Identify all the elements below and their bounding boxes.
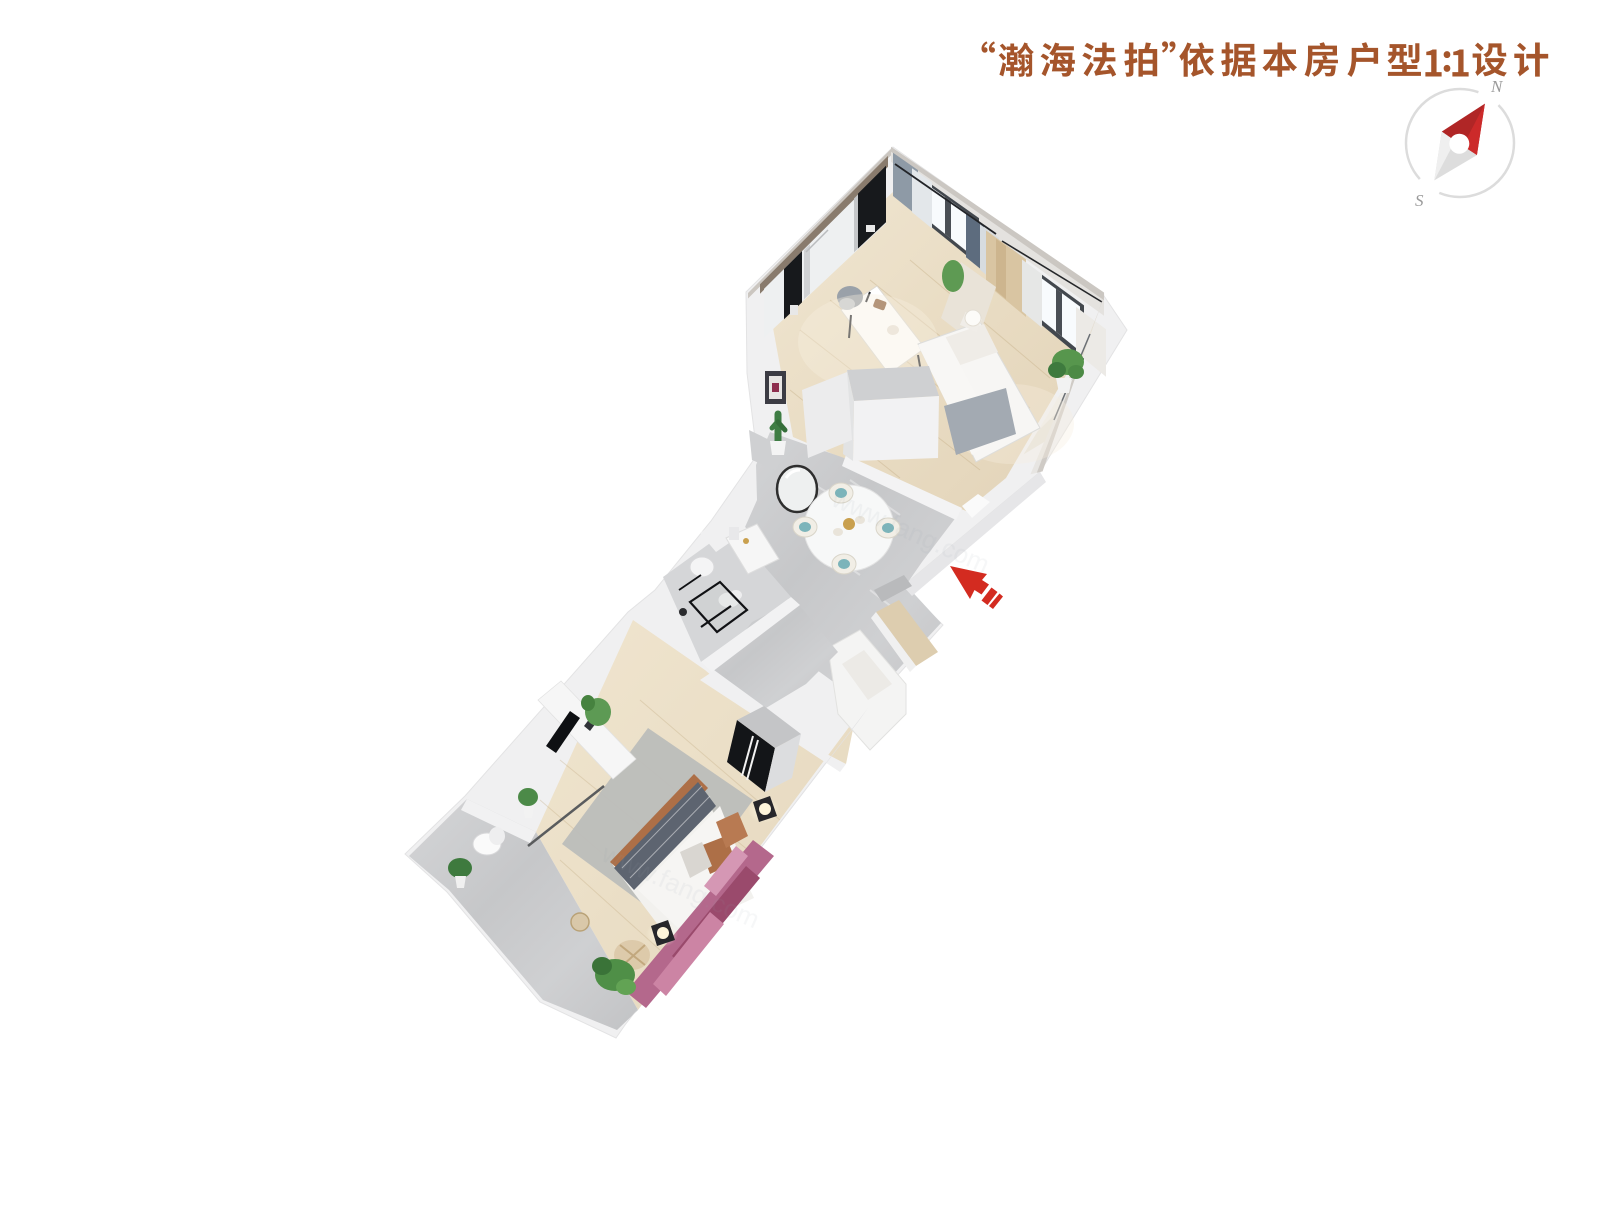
svg-text:S: S [1415,191,1424,210]
svg-text:N: N [1490,77,1504,96]
